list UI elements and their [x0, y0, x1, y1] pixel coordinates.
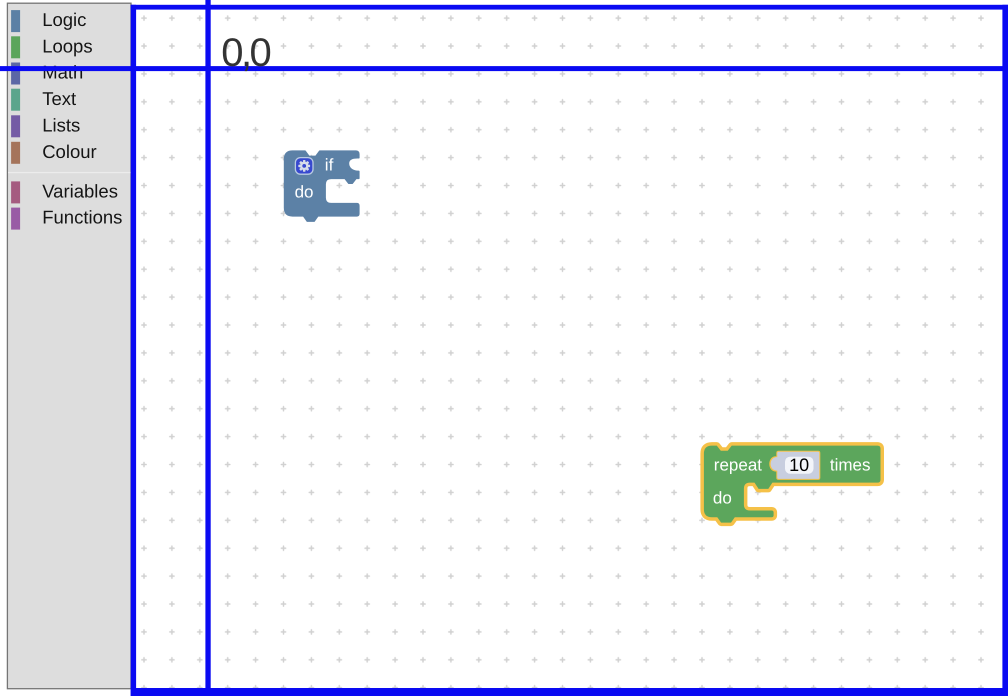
svg-text:times: times [830, 455, 871, 474]
svg-text:Loops: Loops [42, 35, 92, 56]
svg-text:if: if [325, 156, 334, 175]
svg-text:0,0: 0,0 [221, 31, 270, 75]
svg-text:Functions: Functions [42, 207, 122, 228]
svg-text:do: do [713, 488, 732, 507]
svg-text:Lists: Lists [42, 114, 80, 135]
svg-text:Text: Text [42, 88, 76, 109]
svg-text:Math: Math [42, 62, 83, 83]
svg-text:repeat: repeat [714, 455, 762, 474]
svg-text:Variables: Variables [42, 181, 118, 202]
svg-text:10: 10 [789, 455, 809, 475]
svg-text:Colour: Colour [42, 141, 96, 162]
svg-text:Logic: Logic [42, 9, 86, 30]
svg-text:do: do [295, 183, 314, 202]
